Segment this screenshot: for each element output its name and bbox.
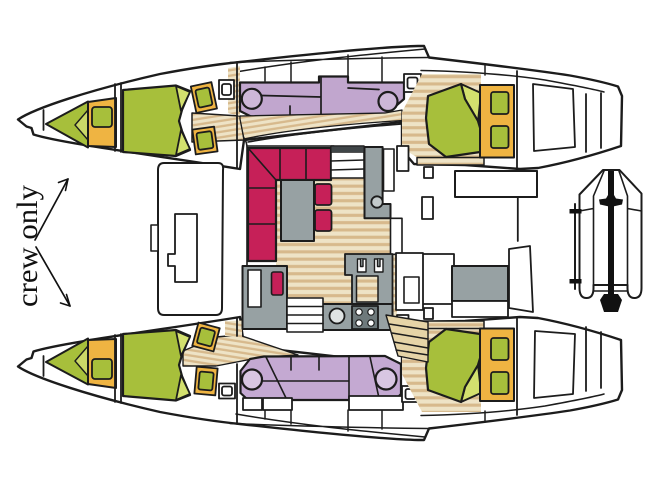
svg-text:crew only: crew only bbox=[11, 185, 44, 307]
